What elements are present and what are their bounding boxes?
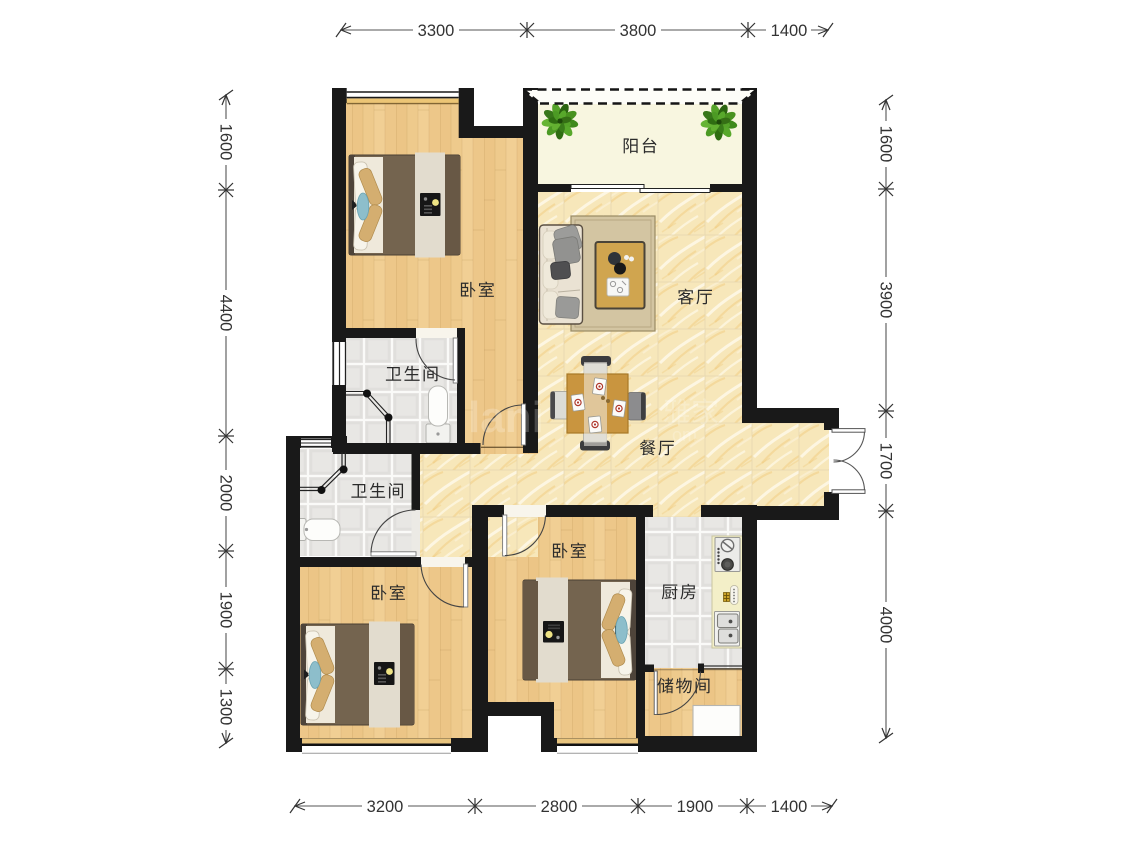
svg-text:1600: 1600 — [217, 124, 235, 161]
svg-text:1300: 1300 — [217, 689, 235, 726]
svg-text:1900: 1900 — [677, 798, 714, 816]
svg-text:3300: 3300 — [418, 22, 455, 40]
svg-text:2000: 2000 — [217, 475, 235, 512]
svg-text:3900: 3900 — [877, 282, 895, 319]
svg-text:4000: 4000 — [877, 607, 895, 644]
svg-text:2800: 2800 — [541, 798, 578, 816]
svg-text:1400: 1400 — [771, 22, 808, 40]
svg-text:4400: 4400 — [217, 295, 235, 332]
svg-text:om: om — [672, 425, 697, 445]
svg-text:1700: 1700 — [877, 443, 895, 480]
svg-text:1600: 1600 — [877, 126, 895, 163]
svg-text:1400: 1400 — [771, 798, 808, 816]
svg-text:1900: 1900 — [217, 592, 235, 629]
svg-text:lani: lani — [468, 393, 544, 442]
svg-text:3200: 3200 — [367, 798, 404, 816]
svg-text:3800: 3800 — [620, 22, 657, 40]
